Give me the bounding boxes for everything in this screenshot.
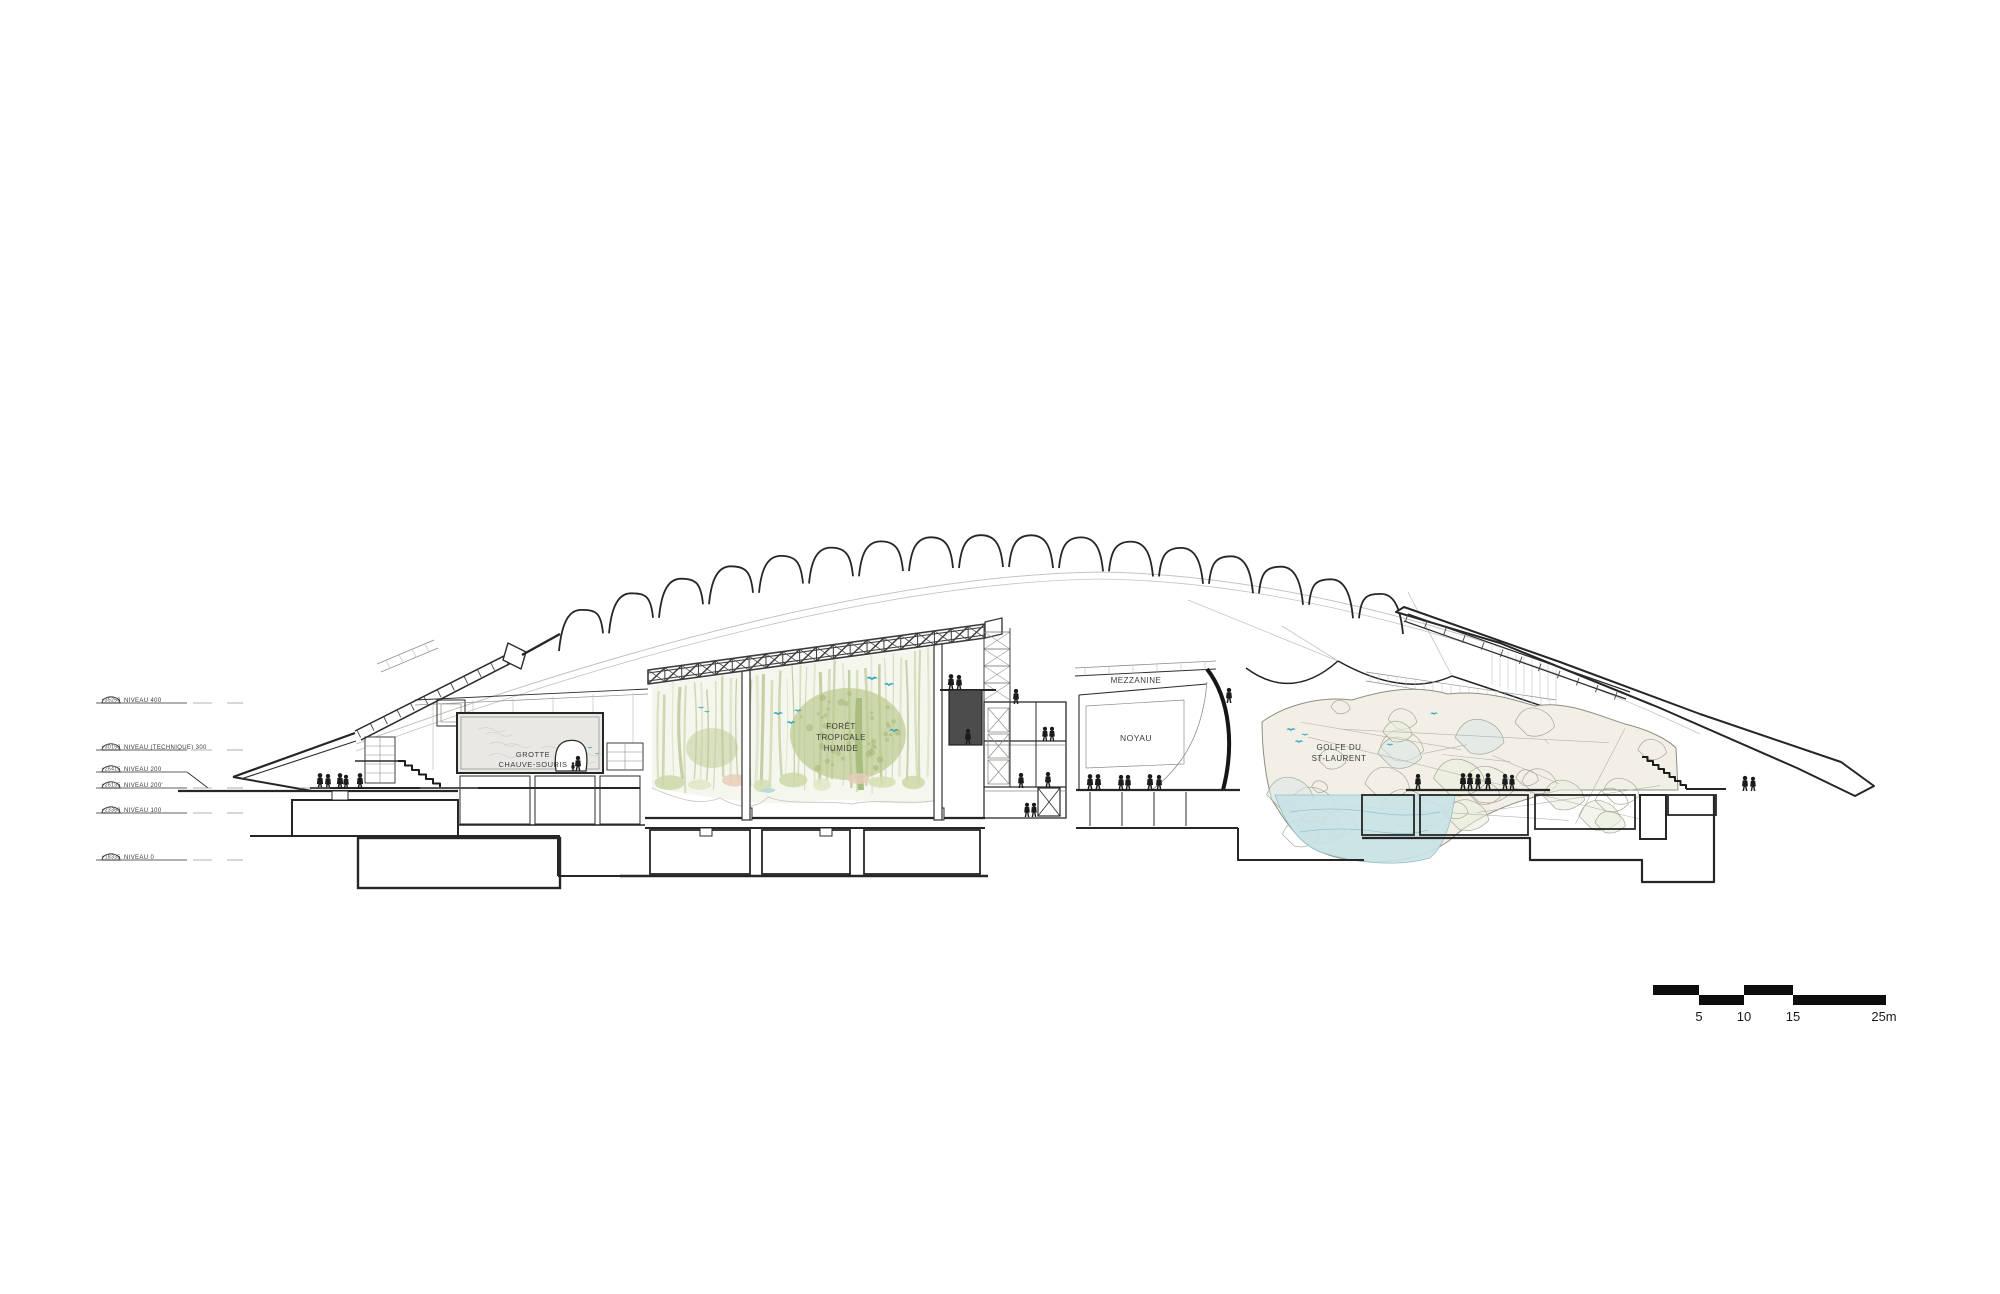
grotte-label-line1: GROTTE (516, 750, 550, 759)
label-mezzanine: MEZZANINE (1111, 676, 1162, 685)
scale-label-10: 10 (1737, 1009, 1751, 1024)
level-name: NIVEAU 400 (124, 698, 162, 704)
person-silhouette (1147, 774, 1153, 790)
level-name: NIVEAU 200 (124, 767, 162, 773)
scale-label-25m: 25m (1871, 1009, 1896, 1024)
level-name: NIVEAU 0 (124, 855, 154, 861)
person-silhouette (1018, 773, 1024, 788)
scale-label-15: 15 (1786, 1009, 1800, 1024)
level-marker-technique-300: +30150 NIVEAU (TECHNIQUE) 300 (102, 744, 207, 751)
person-silhouette (1750, 777, 1756, 791)
person-silhouette (948, 674, 954, 690)
person-silhouette (1045, 772, 1051, 787)
elevation-value: +23380 (102, 807, 121, 813)
elevation-value: +30150 (102, 744, 121, 750)
person-silhouette (1226, 688, 1232, 703)
person-silhouette (1742, 776, 1748, 791)
golfe-label-line2: ST-LAURENT (1312, 754, 1367, 763)
person-silhouette (325, 774, 331, 789)
person-silhouette (317, 773, 323, 789)
person-silhouette (357, 773, 363, 789)
foret-label-line2: TROPICALE (816, 733, 866, 742)
elevation-value: +35250 (102, 697, 121, 703)
foret-label-line3: HUMIDE (824, 744, 859, 753)
elevation-value: +18335 (102, 854, 121, 860)
grotte-label-line2: CHAUVE-SOURIS (498, 760, 567, 769)
person-silhouette (1125, 775, 1131, 790)
scale-bar-segment (1793, 995, 1886, 1005)
person-silhouette (1042, 727, 1048, 741)
person-silhouette (956, 675, 962, 690)
section-drawing: GROTTE CHAUVE-SOURIS FORÊT TROPICALE HUM… (0, 0, 2000, 1294)
golfe-label-line1: GOLFE DU (1317, 743, 1362, 752)
elevation-value: +26135 (102, 782, 121, 788)
level-name: NIVEAU 100 (124, 808, 162, 814)
level-marker-100: +23380 NIVEAU 100 (102, 807, 162, 814)
person-silhouette (337, 773, 343, 789)
person-silhouette (1049, 727, 1055, 741)
level-marker-0: +18335 NIVEAU 0 (102, 854, 155, 861)
person-silhouette (343, 775, 349, 789)
person-silhouette (1024, 803, 1030, 817)
person-silhouette (1031, 803, 1037, 817)
section-sheet: GROTTE CHAUVE-SOURIS FORÊT TROPICALE HUM… (0, 0, 2000, 1294)
scale-bar-segment (1744, 985, 1793, 995)
person-silhouette (1087, 774, 1093, 790)
person-silhouette (1118, 775, 1124, 790)
label-noyau: NOYAU (1120, 733, 1152, 743)
elevation-value: +26415 (102, 766, 121, 772)
person-silhouette (1095, 774, 1101, 790)
level-name: NIVEAU 200' (124, 783, 163, 789)
scale-label-5: 5 (1695, 1009, 1702, 1024)
scale-bar-segment (1699, 995, 1744, 1005)
level-marker-400: +35250 NIVEAU 400 (102, 697, 162, 704)
level-marker-200-prime: +26135 NIVEAU 200' (102, 782, 163, 789)
level-name: NIVEAU (TECHNIQUE) 300 (124, 745, 207, 751)
foret-label-line1: FORÊT (826, 722, 856, 731)
level-marker-200: +26415 NIVEAU 200 (102, 766, 162, 773)
scale-bar-segment (1653, 985, 1699, 995)
scale-bar: 5 10 15 25m (1653, 985, 1897, 1024)
person-silhouette (1156, 775, 1162, 790)
